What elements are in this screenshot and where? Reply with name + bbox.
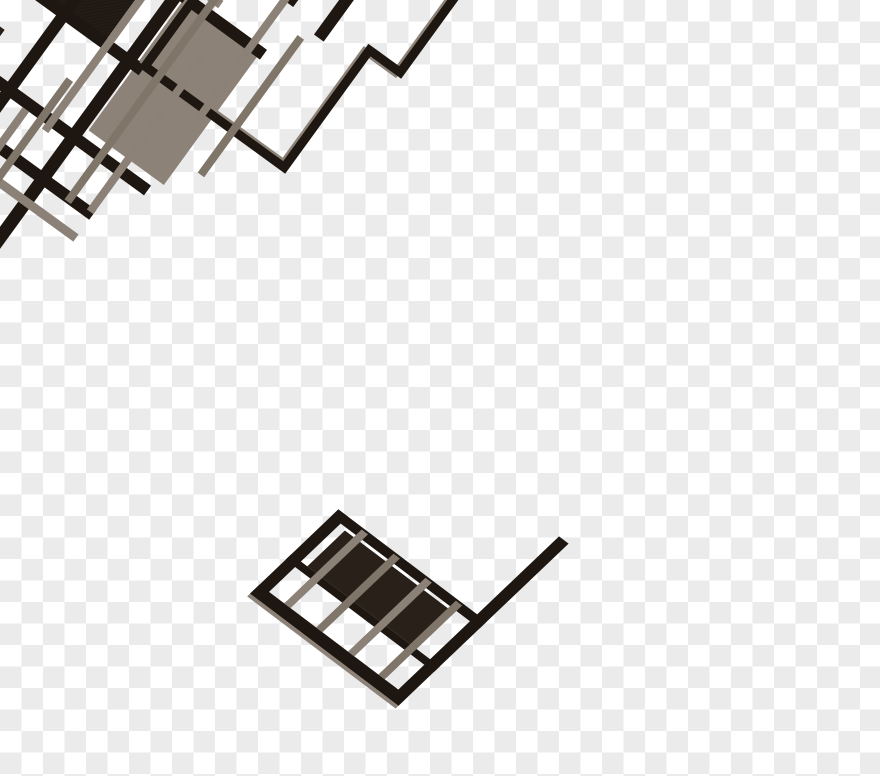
room-dark-L (0, 0, 5, 88)
floor-plan (0, 0, 880, 776)
wall-wing-divider (314, 0, 371, 42)
transparency-checkerboard (0, 0, 880, 776)
plan-bottom-wing-group (247, 431, 568, 708)
plan-main-group (0, 0, 477, 465)
